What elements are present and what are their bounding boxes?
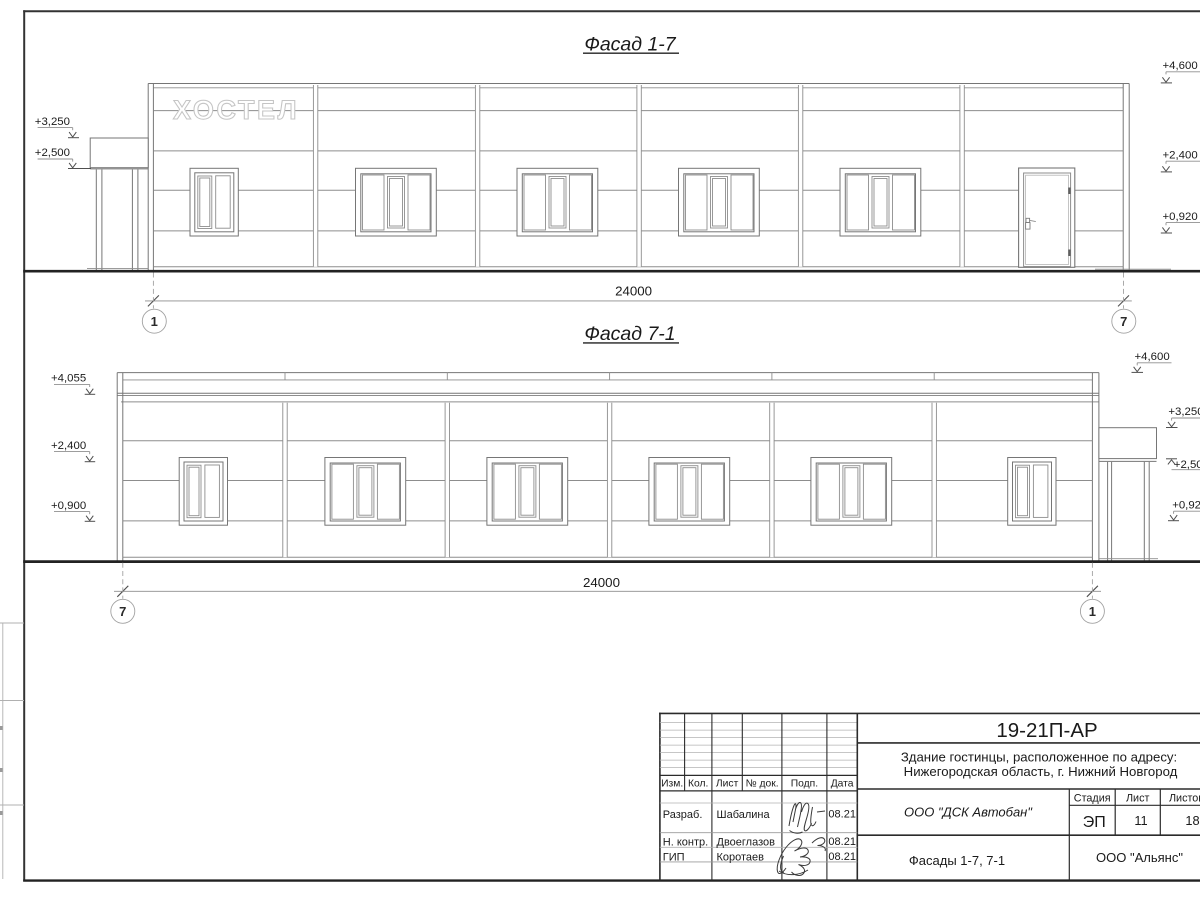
svg-text:Фасад 1-7: Фасад 1-7 bbox=[584, 34, 676, 56]
svg-text:+0,920: +0,920 bbox=[1163, 211, 1198, 223]
svg-text:+2,500: +2,500 bbox=[1174, 459, 1200, 471]
svg-text:Разраб.: Разраб. bbox=[663, 809, 703, 821]
svg-text:+4,600: +4,600 bbox=[1163, 60, 1198, 72]
svg-text:Нижегородская область, г. Нижн: Нижегородская область, г. Нижний Новгоро… bbox=[904, 764, 1178, 779]
svg-text:+0,900: +0,900 bbox=[51, 500, 86, 512]
svg-text:Здание гостинцы, расположенное: Здание гостинцы, расположенное по адресу… bbox=[901, 750, 1177, 765]
svg-text:+2,400: +2,400 bbox=[51, 440, 86, 452]
svg-text:ХОСТЕЛ: ХОСТЕЛ bbox=[173, 95, 299, 125]
svg-text:Листов: Листов bbox=[1169, 793, 1200, 805]
svg-text:Двоеглазов: Двоеглазов bbox=[717, 836, 776, 848]
svg-text:1: 1 bbox=[151, 314, 158, 329]
svg-text:Н. контр.: Н. контр. bbox=[663, 837, 708, 849]
svg-text:Шабалина: Шабалина bbox=[717, 809, 771, 821]
svg-text:ЭП: ЭП bbox=[1083, 814, 1106, 831]
svg-text:Кол.: Кол. bbox=[688, 779, 708, 790]
svg-text:7: 7 bbox=[1120, 314, 1127, 329]
svg-text:ООО "ДСК Автобан": ООО "ДСК Автобан" bbox=[904, 805, 1033, 820]
svg-text:Лист: Лист bbox=[716, 779, 739, 790]
svg-text:Изм.: Изм. bbox=[661, 779, 683, 790]
svg-text:19-21П-АР: 19-21П-АР bbox=[996, 719, 1097, 742]
svg-text:+4,600: +4,600 bbox=[1135, 351, 1170, 363]
svg-text:24000: 24000 bbox=[615, 283, 652, 298]
svg-text:ГИП: ГИП bbox=[663, 852, 685, 864]
svg-text:7: 7 bbox=[119, 604, 126, 619]
svg-text:+2,500: +2,500 bbox=[35, 147, 70, 159]
svg-text:08.21: 08.21 bbox=[828, 836, 856, 848]
svg-text:Коротаев: Коротаев bbox=[717, 851, 765, 863]
svg-text:1: 1 bbox=[1089, 604, 1096, 619]
svg-text:+3,250: +3,250 bbox=[35, 116, 70, 128]
svg-text:№ док.: № док. bbox=[746, 779, 779, 790]
svg-text:Подп.: Подп. bbox=[791, 779, 818, 790]
svg-text:+0,920: +0,920 bbox=[1172, 499, 1200, 511]
svg-text:08.21: 08.21 bbox=[828, 851, 856, 863]
svg-text:Фасад 7-1: Фасад 7-1 bbox=[584, 323, 675, 345]
svg-text:24000: 24000 bbox=[583, 575, 620, 590]
svg-text:18: 18 bbox=[1185, 813, 1199, 828]
svg-text:+2,400: +2,400 bbox=[1163, 149, 1198, 161]
svg-text:Дата: Дата bbox=[831, 779, 854, 790]
svg-text:Стадия: Стадия bbox=[1074, 793, 1111, 805]
svg-text:+4,055: +4,055 bbox=[51, 373, 86, 385]
svg-text:ООО "Альянс": ООО "Альянс" bbox=[1096, 850, 1183, 865]
svg-text:08.21: 08.21 bbox=[828, 808, 856, 820]
svg-text:Лист: Лист bbox=[1126, 793, 1150, 805]
svg-text:Фасады 1-7, 7-1: Фасады 1-7, 7-1 bbox=[909, 853, 1005, 868]
svg-text:11: 11 bbox=[1134, 813, 1147, 828]
svg-text:+3,250: +3,250 bbox=[1168, 406, 1200, 418]
